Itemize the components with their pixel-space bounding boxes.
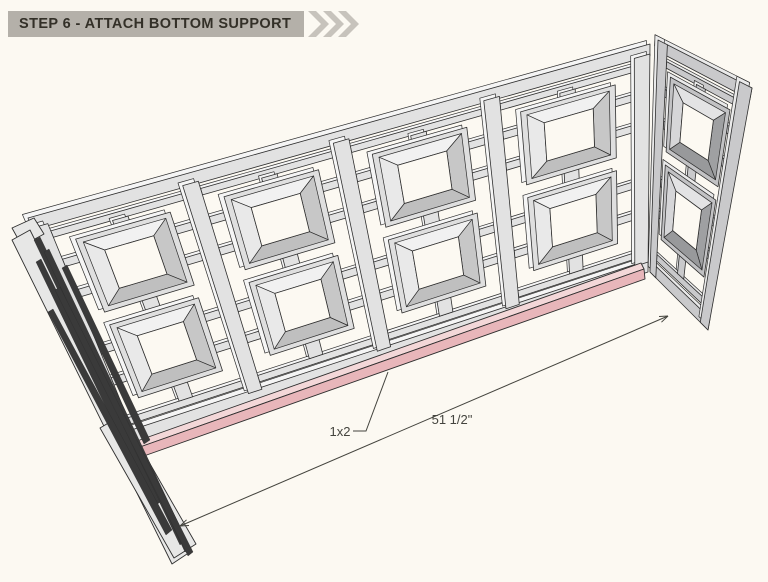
- step-title-bar: STEP 6 - ATTACH BOTTOM SUPPORT: [8, 11, 304, 37]
- dimension-label: 51 1/2": [432, 412, 473, 427]
- part-size-label: 1x2: [330, 424, 351, 439]
- step-title: STEP 6 - ATTACH BOTTOM SUPPORT: [19, 16, 291, 32]
- isometric-drawing: 51 1/2" 1x2: [0, 0, 768, 582]
- assembly-diagram: 51 1/2" 1x2 STEP 6 - ATTACH BOTTOM SUPPO…: [0, 0, 768, 582]
- chevrons-icon: [308, 11, 366, 37]
- step-header: STEP 6 - ATTACH BOTTOM SUPPORT: [8, 11, 366, 37]
